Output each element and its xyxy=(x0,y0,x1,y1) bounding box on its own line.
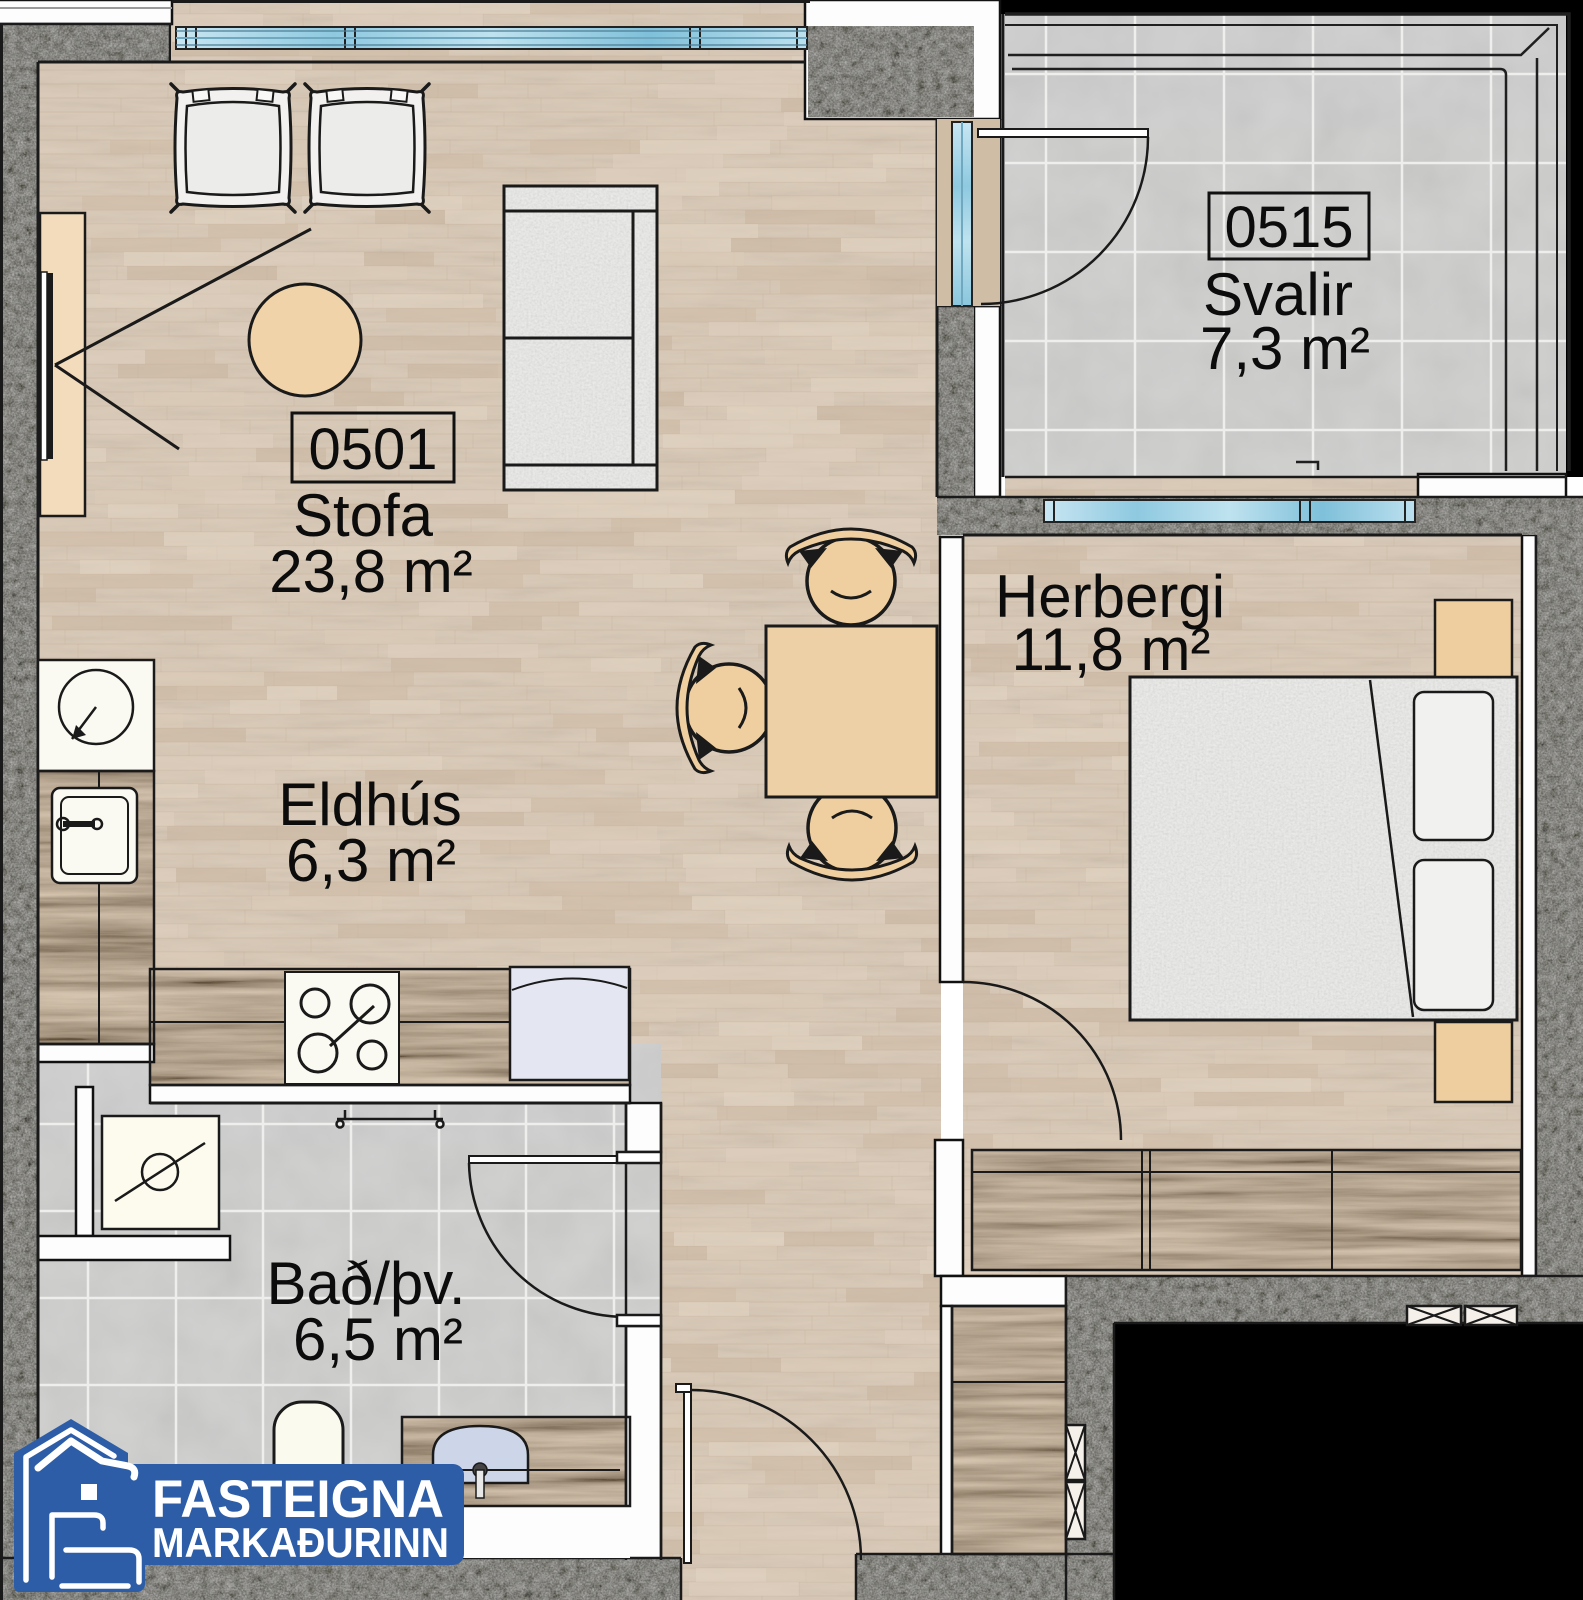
svg-text:0501: 0501 xyxy=(308,417,437,482)
svg-text:11,8 m²: 11,8 m² xyxy=(1012,616,1211,683)
svg-text:6,5 m²: 6,5 m² xyxy=(293,1306,463,1373)
svg-text:6,3 m²: 6,3 m² xyxy=(286,827,456,894)
svg-text:MARKAÐURINN: MARKAÐURINN xyxy=(152,1519,449,1566)
svg-text:23,8 m²: 23,8 m² xyxy=(269,538,472,605)
svg-text:0515: 0515 xyxy=(1224,195,1353,260)
svg-text:7,3 m²: 7,3 m² xyxy=(1200,315,1370,382)
